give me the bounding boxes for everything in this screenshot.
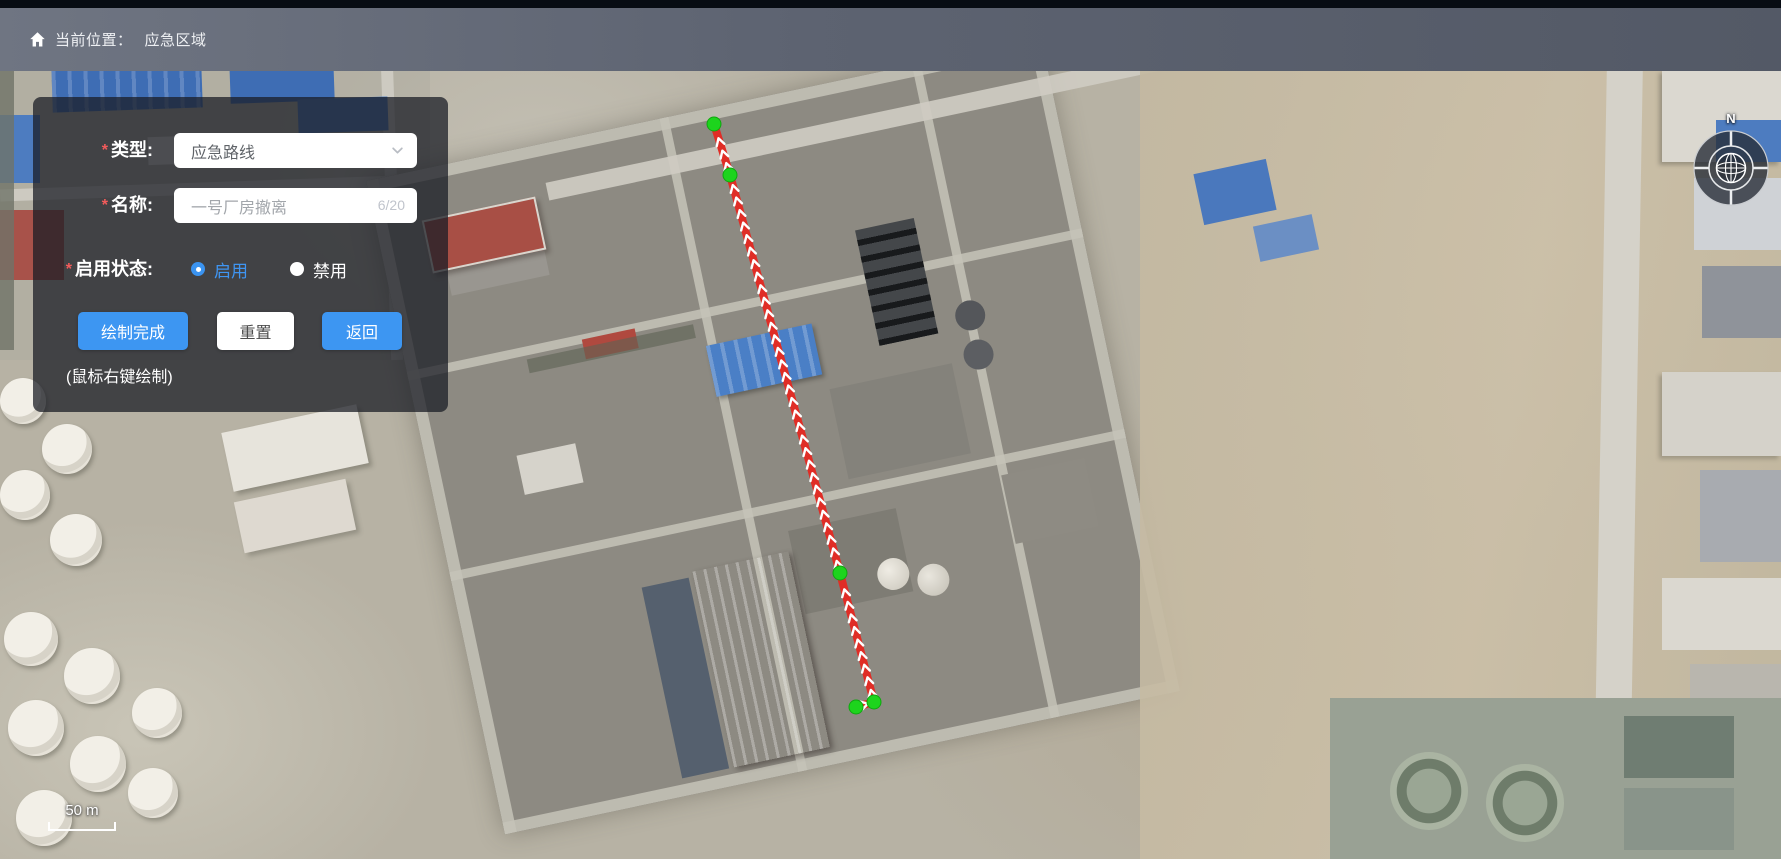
route-vertex[interactable] xyxy=(723,168,737,182)
type-select-value: 应急路线 xyxy=(191,139,391,163)
scale-label: 50 m xyxy=(48,802,116,819)
breadcrumb: 当前位置：应急区域 xyxy=(55,29,207,50)
home-icon[interactable] xyxy=(29,31,46,48)
name-field-label: *名称: xyxy=(33,193,153,218)
route-vertex[interactable] xyxy=(707,117,721,131)
status-field-label: *启用状态: xyxy=(33,257,153,282)
top-dark-strip xyxy=(0,0,1781,8)
route-vertex[interactable] xyxy=(833,566,847,580)
chevron-down-icon xyxy=(391,144,404,157)
required-mark: * xyxy=(102,142,108,159)
scale-bar: 50 m xyxy=(48,802,116,831)
compass-widget[interactable]: N xyxy=(1691,110,1771,213)
name-char-counter: 6/20 xyxy=(378,188,405,223)
radio-enabled[interactable] xyxy=(191,262,205,276)
breadcrumb-value: 应急区域 xyxy=(145,32,207,49)
radio-disabled[interactable] xyxy=(290,262,304,276)
required-mark: * xyxy=(66,261,72,278)
breadcrumb-label: 当前位置： xyxy=(55,32,133,49)
app-window: N 50 m 当前位置：应急区域 *类型: xyxy=(0,0,1781,859)
radio-enabled-label[interactable]: 启用 xyxy=(214,257,248,282)
compass-north-label: N xyxy=(1691,110,1771,128)
status-radio-group: 启用 禁用 xyxy=(191,257,347,281)
route-vertex[interactable] xyxy=(849,700,863,714)
type-field-label: *类型: xyxy=(33,138,153,163)
route-form-panel: *类型: 应急路线 *名称: 6/20 *启用状态: 启用 禁用 绘制完成 重置… xyxy=(33,97,448,412)
required-mark: * xyxy=(102,197,108,214)
back-button[interactable]: 返回 xyxy=(322,312,402,350)
header-bar: 当前位置：应急区域 xyxy=(0,8,1781,71)
route-vertex[interactable] xyxy=(867,695,881,709)
compass-icon xyxy=(1691,128,1771,208)
reset-button[interactable]: 重置 xyxy=(217,312,294,350)
type-select[interactable]: 应急路线 xyxy=(174,133,417,168)
scale-bracket xyxy=(48,822,116,831)
draw-hint-text: (鼠标右键绘制) xyxy=(66,363,173,387)
finish-drawing-button[interactable]: 绘制完成 xyxy=(78,312,188,350)
name-input-wrap: 6/20 xyxy=(174,188,417,223)
radio-disabled-label[interactable]: 禁用 xyxy=(313,257,347,282)
